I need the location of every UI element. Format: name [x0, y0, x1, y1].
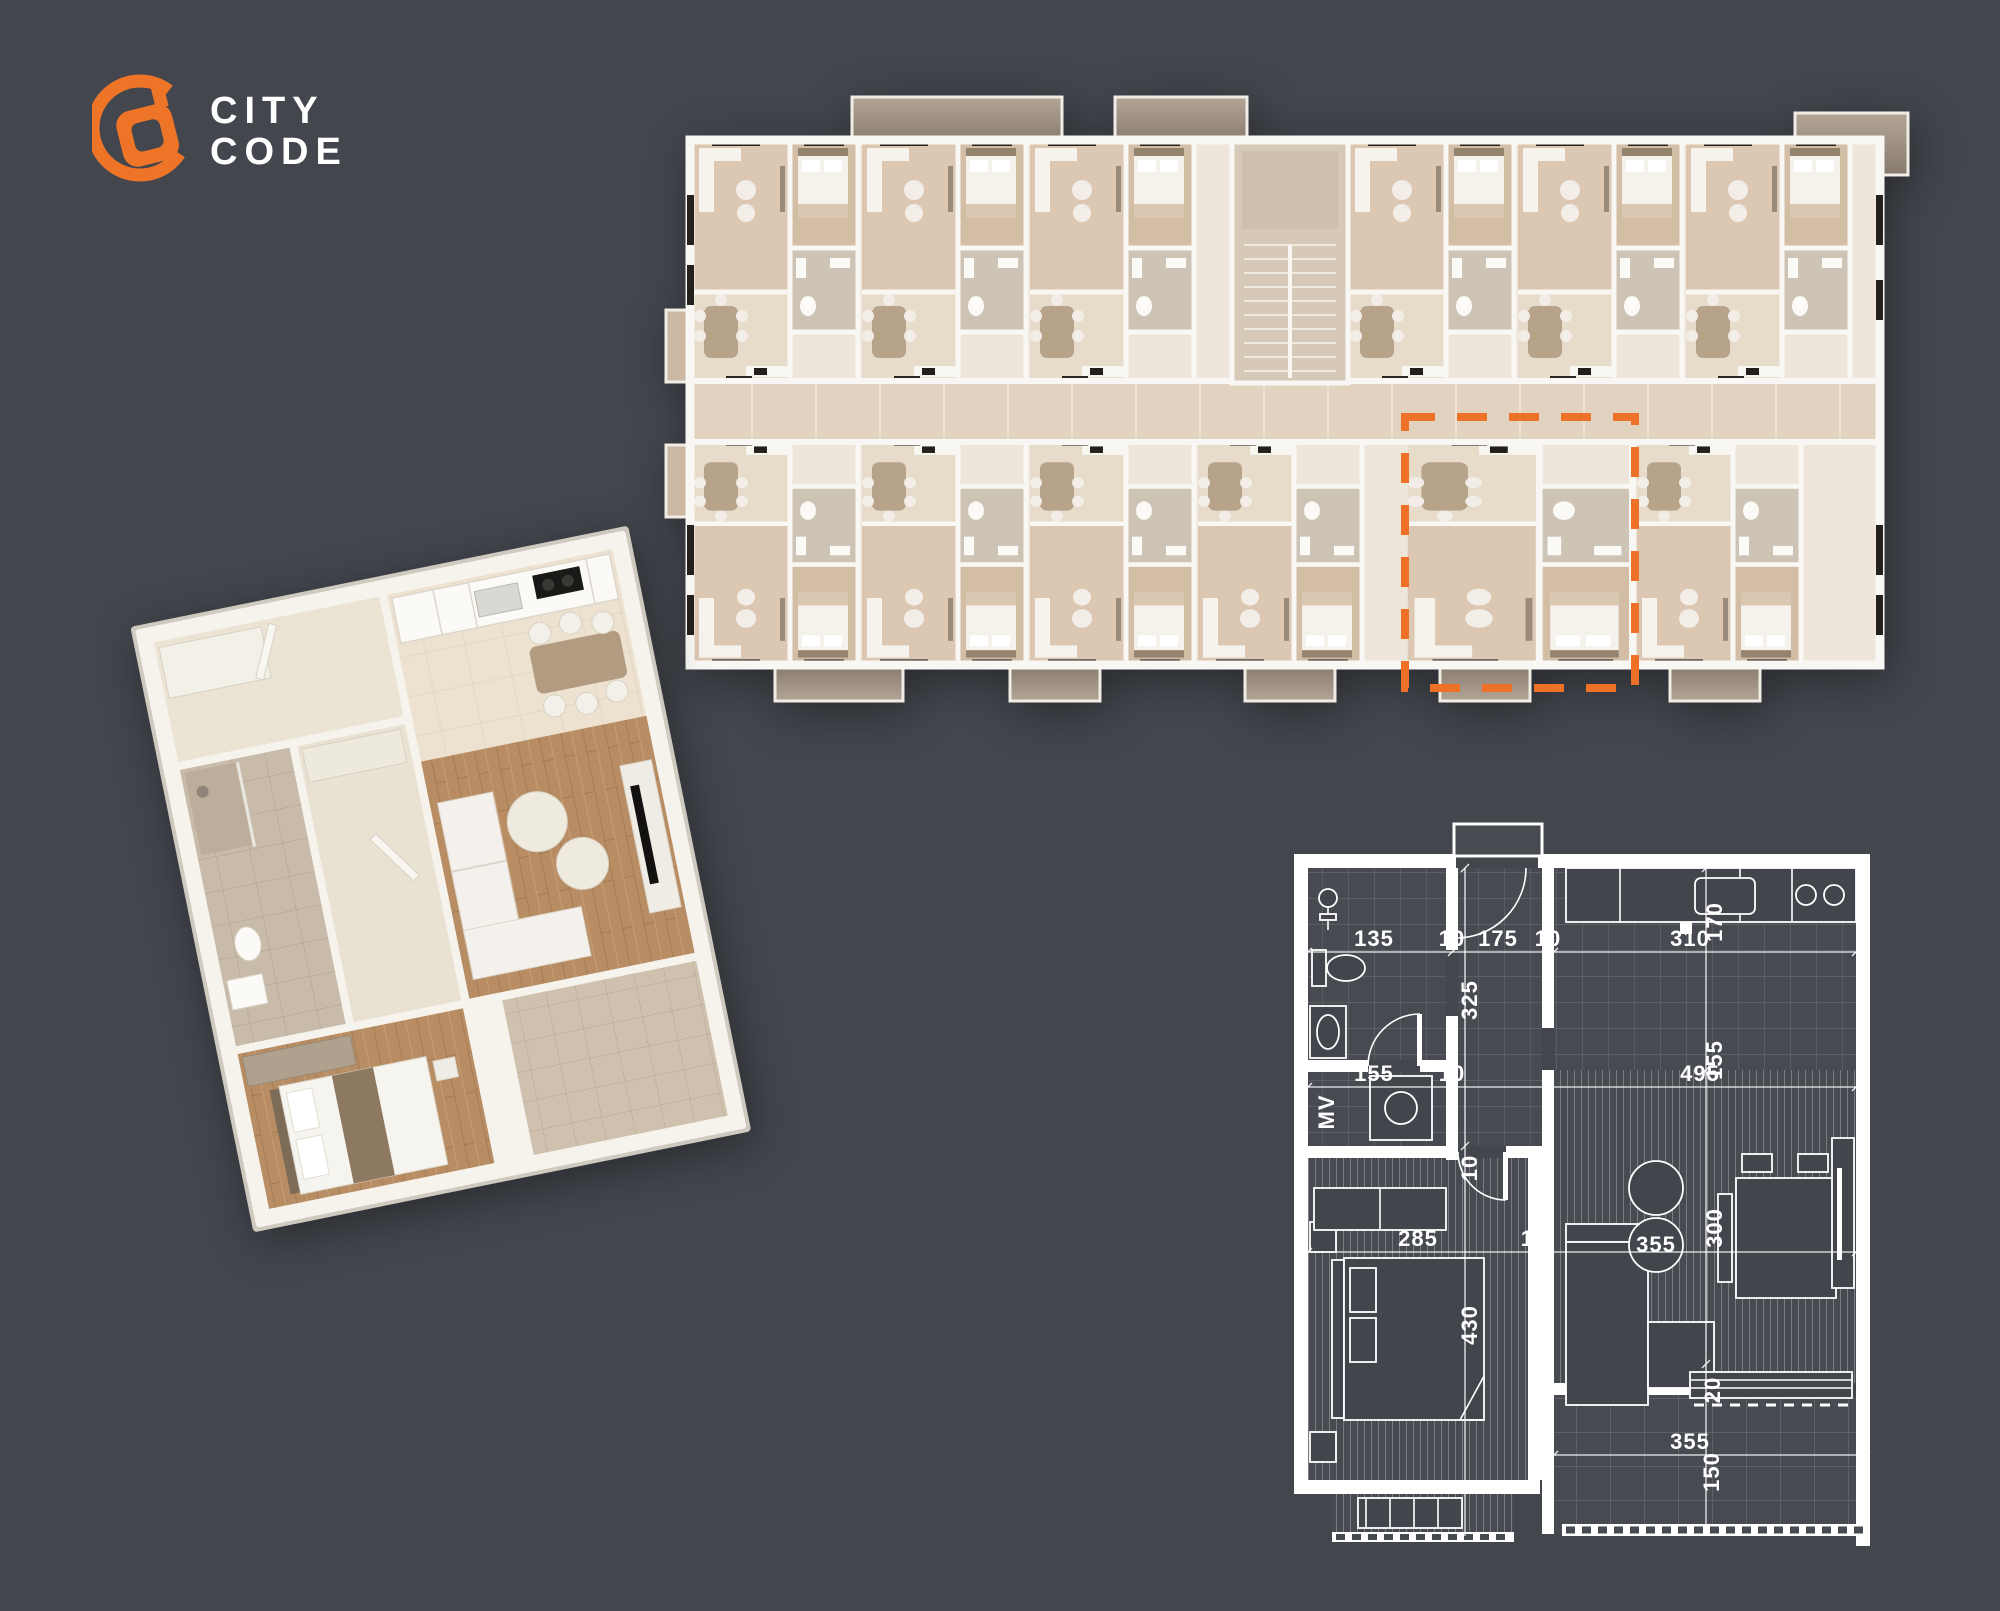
dim-hall-width: 175: [1478, 926, 1518, 951]
page-canvas: { "canvas": { "width": 2000, "height": 1…: [0, 0, 2000, 1611]
unit-3d-render: [40, 470, 820, 1280]
dim-bath-width: 135: [1354, 926, 1394, 951]
building-floorplan: [660, 95, 1910, 705]
dim-terrace-width: 355: [1670, 1429, 1710, 1454]
tech-coffee-table: [1629, 1161, 1683, 1215]
tech-chair: [1798, 1154, 1828, 1172]
washbasin: [227, 974, 268, 1011]
tech-nightstand: [1310, 1432, 1336, 1462]
dim-bedroom-width: 285: [1398, 1226, 1438, 1251]
dim-hall-depth: 325: [1457, 980, 1482, 1020]
tech-pillow: [1350, 1318, 1376, 1362]
logo-text-line2: CODE: [210, 131, 348, 173]
tech-burner: [1796, 885, 1816, 905]
label-washing-machine: MV: [1314, 1095, 1339, 1130]
dim-bedroom-depth: 430: [1457, 1305, 1482, 1345]
tech-pillow: [1350, 1268, 1376, 1312]
unit-3d-group: [130, 526, 751, 1233]
dim-wall-b: 10: [1535, 926, 1561, 951]
technical-floorplan: 135 10 175 10 310 170 325 155 10 495 155…: [1270, 820, 1900, 1600]
logo-text-line1: CITY: [210, 90, 325, 132]
tech-toilet: [1327, 955, 1365, 981]
logo-mark-icon: [92, 63, 205, 193]
dim-dining-depth: 155: [1702, 1040, 1727, 1080]
dim-living-depth: 300: [1702, 1208, 1727, 1248]
tech-tv: [1837, 1168, 1842, 1260]
tech-burner: [1824, 885, 1844, 905]
building-stair-core: [1232, 140, 1348, 383]
tech-bed-headboard: [1332, 1260, 1344, 1418]
tech-balcony-bench: [1358, 1498, 1462, 1528]
dim-terrace-depth: 150: [1699, 1452, 1724, 1492]
tech-chair: [1742, 1154, 1772, 1172]
building-corridor: [690, 378, 1880, 445]
tech-shower-icon: [1319, 889, 1337, 907]
entry-vestibule: [1454, 824, 1542, 856]
dim-wall-d: 10: [1521, 1226, 1547, 1251]
dim-sideboard-depth: 20: [1700, 1377, 1725, 1403]
dim-bath2-width: 155: [1354, 1061, 1394, 1086]
bedroom-door-leaf: [1503, 1152, 1508, 1200]
tech-toilet-tank: [1312, 950, 1326, 986]
logo-inner-glyph: [108, 82, 182, 170]
dim-hall-door: 10: [1457, 1155, 1482, 1181]
dim-kitchen-depth: 170: [1702, 902, 1727, 942]
dim-wall-c: 10: [1439, 1061, 1465, 1086]
tech-dining-table: [1736, 1178, 1836, 1298]
bath-door-leaf: [1417, 1014, 1422, 1066]
tech-sofa: [1566, 1242, 1648, 1405]
dim-wall-a: 10: [1439, 926, 1465, 951]
tech-tv-unit: [1832, 1138, 1854, 1288]
citycode-logo[interactable]: CITY CODE: [92, 50, 432, 200]
dim-coffee-width: 355: [1636, 1232, 1676, 1257]
